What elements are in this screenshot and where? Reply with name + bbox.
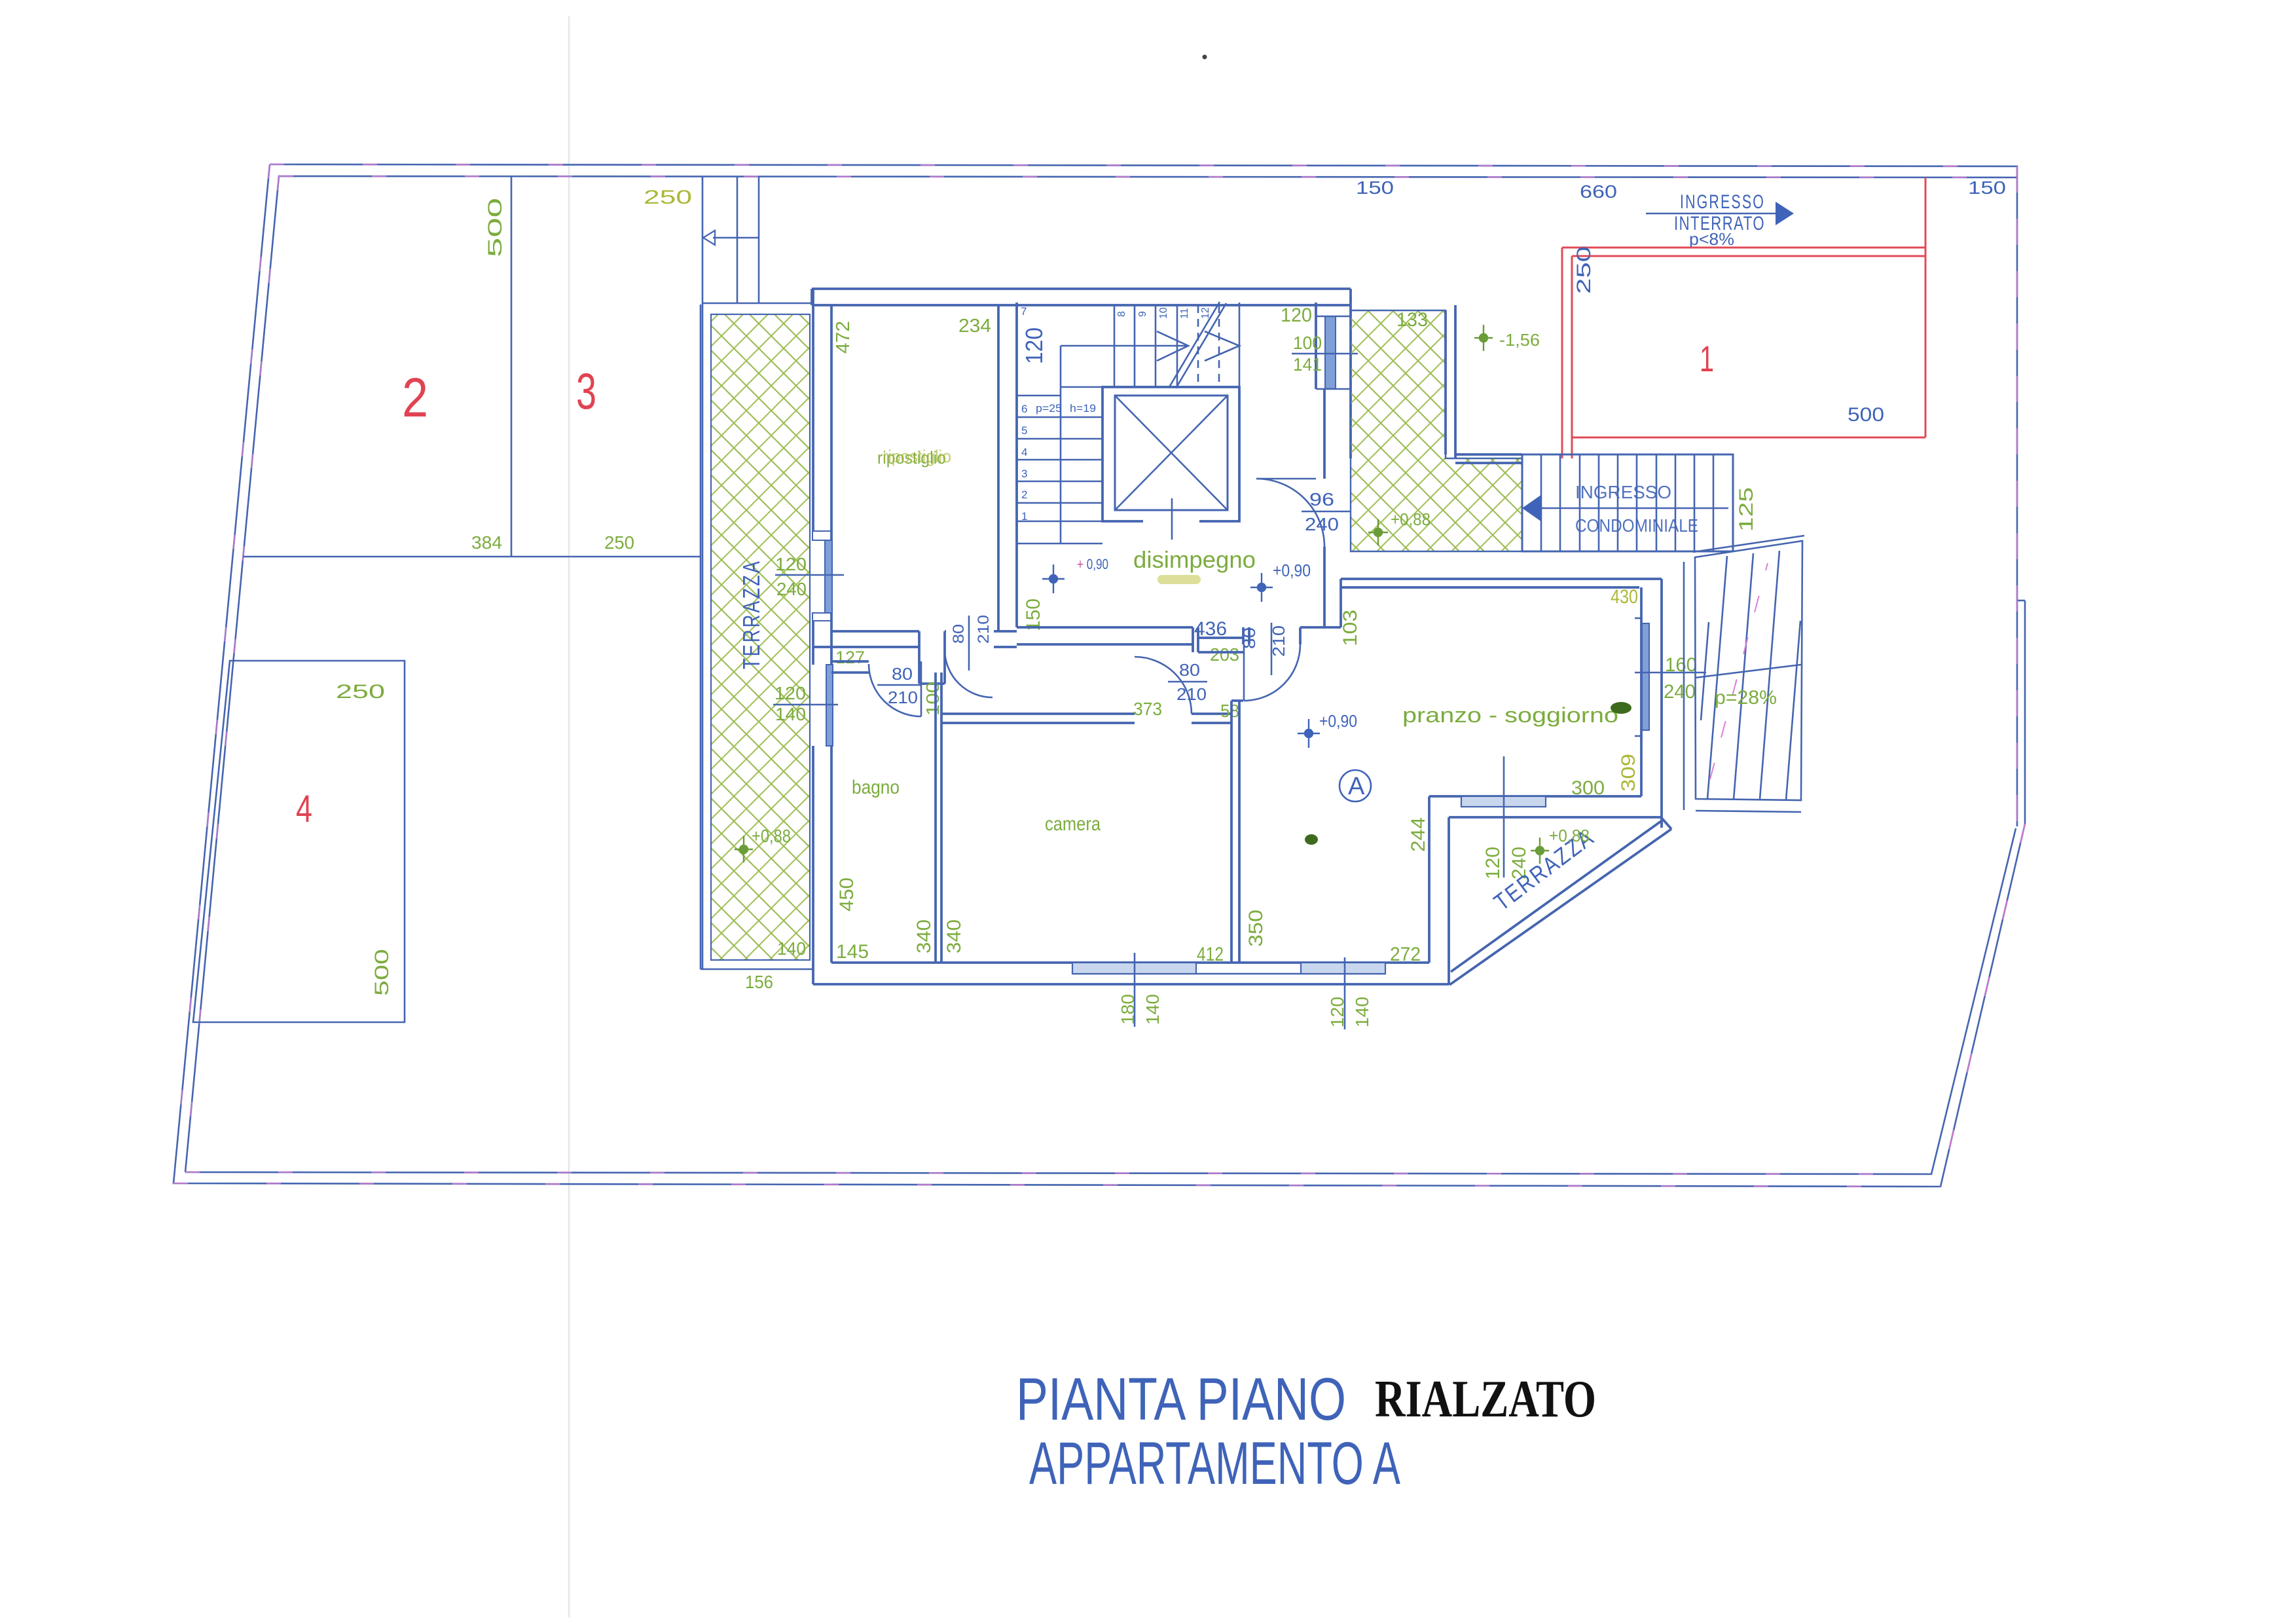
svg-text:80: 80: [1179, 660, 1200, 680]
svg-text:bagno: bagno: [852, 777, 900, 798]
svg-text:156: 156: [745, 972, 773, 992]
svg-text:12: 12: [1200, 307, 1211, 319]
svg-text:+0,88: +0,88: [752, 826, 791, 846]
svg-text:272: 272: [1390, 944, 1421, 965]
svg-text:340: 340: [913, 919, 935, 953]
svg-text:2: 2: [1021, 489, 1027, 501]
svg-text:203: 203: [1210, 644, 1239, 665]
svg-text:INGRESSO: INGRESSO: [1680, 191, 1765, 213]
svg-text:240: 240: [776, 579, 807, 599]
svg-text:120: 120: [1021, 327, 1048, 364]
svg-text:100: 100: [1293, 333, 1322, 353]
svg-text:250: 250: [1573, 246, 1595, 294]
svg-text:133: 133: [1396, 309, 1428, 331]
svg-text:450: 450: [836, 877, 858, 912]
svg-text:141: 141: [1293, 354, 1322, 375]
svg-text:210: 210: [975, 615, 993, 644]
svg-text:camera: camera: [1045, 813, 1101, 835]
svg-text:+0,88: +0,88: [1391, 509, 1430, 529]
svg-text:2: 2: [402, 367, 428, 428]
svg-text:127: 127: [835, 648, 865, 667]
svg-text:6: 6: [1021, 403, 1027, 415]
svg-text:RIALZATO: RIALZATO: [1375, 1371, 1596, 1428]
svg-text:180: 180: [1118, 994, 1138, 1025]
svg-text:120: 120: [1327, 997, 1347, 1027]
svg-text:430: 430: [1611, 586, 1638, 608]
svg-text:PIANTA PIANO: PIANTA PIANO: [1016, 1366, 1346, 1433]
svg-text:10: 10: [1158, 307, 1169, 319]
svg-text:96: 96: [1309, 489, 1334, 509]
svg-text:120: 120: [774, 683, 806, 703]
svg-text:CONDOMINIALE: CONDOMINIALE: [1575, 515, 1698, 536]
svg-text:-1,56: -1,56: [1499, 330, 1540, 350]
svg-text:p<8%: p<8%: [1689, 229, 1734, 249]
svg-text:340: 340: [943, 919, 965, 953]
svg-text:240: 240: [1305, 514, 1339, 534]
svg-text:244: 244: [1408, 817, 1429, 852]
svg-text:58: 58: [1220, 701, 1239, 721]
svg-text:3: 3: [576, 362, 596, 420]
svg-text:500: 500: [371, 949, 393, 996]
svg-text:210: 210: [1176, 684, 1207, 704]
svg-text:660: 660: [1580, 181, 1617, 202]
svg-text:8: 8: [1116, 311, 1127, 317]
svg-text:80: 80: [892, 664, 913, 684]
svg-text:150: 150: [1968, 177, 2006, 198]
svg-text:h=19: h=19: [1070, 402, 1096, 415]
svg-text:140: 140: [775, 704, 806, 724]
svg-text:500: 500: [484, 198, 506, 257]
svg-text:373: 373: [1133, 699, 1162, 719]
svg-text:120: 120: [1281, 304, 1312, 326]
svg-text:1: 1: [1021, 510, 1027, 523]
svg-text:A: A: [1348, 773, 1365, 800]
svg-text:309: 309: [1618, 754, 1639, 792]
svg-text:500: 500: [1848, 404, 1884, 426]
svg-text:350: 350: [1245, 910, 1267, 947]
svg-text:140: 140: [1352, 997, 1372, 1027]
svg-text:120: 120: [775, 554, 807, 574]
svg-text:p=25: p=25: [1036, 402, 1062, 415]
svg-text:+0,90: +0,90: [1319, 711, 1357, 731]
svg-text:5: 5: [1021, 424, 1027, 437]
svg-text:240: 240: [1664, 681, 1696, 703]
svg-text:4: 4: [296, 788, 312, 830]
svg-text:300: 300: [1571, 777, 1605, 799]
svg-text:140: 140: [1142, 994, 1163, 1025]
svg-text:80: 80: [950, 624, 968, 644]
svg-text:160: 160: [1665, 654, 1697, 676]
svg-text:1: 1: [1700, 338, 1714, 379]
svg-text:+0,88: +0,88: [1549, 826, 1590, 845]
svg-text:7: 7: [1021, 305, 1027, 318]
svg-text:120: 120: [1482, 847, 1504, 879]
svg-text:TERRAZZA: TERRAZZA: [738, 559, 765, 669]
svg-text:+0,90: +0,90: [1273, 561, 1311, 580]
svg-text:100: 100: [922, 682, 943, 716]
svg-text:472: 472: [833, 321, 854, 354]
svg-text:250: 250: [644, 187, 692, 208]
svg-text:210: 210: [888, 688, 918, 707]
svg-text:4: 4: [1021, 446, 1027, 458]
svg-text:INGRESSO: INGRESSO: [1575, 482, 1671, 502]
svg-text:250: 250: [336, 681, 385, 703]
svg-text:ripostiglio: ripostiglio: [883, 447, 951, 466]
svg-text:11: 11: [1179, 308, 1190, 319]
svg-text:250: 250: [604, 532, 634, 553]
svg-text:103: 103: [1339, 610, 1361, 646]
svg-text:210: 210: [1269, 625, 1288, 657]
svg-text:412: 412: [1197, 944, 1224, 965]
svg-text:p=28%: p=28%: [1715, 687, 1777, 709]
svg-text:150: 150: [1356, 177, 1394, 198]
svg-text:3: 3: [1021, 468, 1027, 480]
svg-text:pranzo - soggiorno: pranzo - soggiorno: [1402, 703, 1618, 727]
svg-text:disimpegno: disimpegno: [1133, 546, 1256, 573]
svg-text:9: 9: [1137, 311, 1148, 317]
svg-text:384: 384: [471, 532, 502, 553]
svg-text:145: 145: [836, 941, 869, 963]
svg-text:APPARTAMENTO A: APPARTAMENTO A: [1029, 1430, 1400, 1497]
svg-text:125: 125: [1736, 487, 1757, 532]
svg-text:234: 234: [958, 316, 991, 337]
svg-text:140: 140: [777, 938, 806, 959]
svg-text:+ 0,90: + 0,90: [1077, 556, 1108, 572]
